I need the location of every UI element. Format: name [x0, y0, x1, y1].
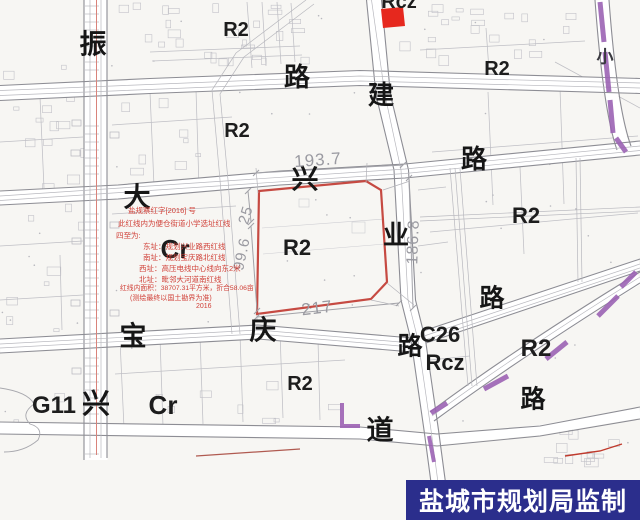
boundary-segment [196, 449, 300, 456]
zone-code-label: G11 [32, 394, 76, 418]
street-name-label: 路 [461, 146, 487, 172]
street-name-label: 建 [368, 82, 394, 108]
red-annotation-line: 北址：毗邻大河道南红线 [139, 276, 222, 284]
street-name-label: 兴 [82, 390, 110, 418]
red-annotation-line: 红线内面积：38707.31平方米，折合58.06亩 [120, 286, 254, 293]
street-name-label: 振 [80, 32, 107, 59]
zone-code-label: Rcz [381, 0, 417, 12]
agency-bar: 盐城市规划局监制 [406, 480, 640, 520]
red-line-parcel-boundary [257, 181, 387, 314]
zone-code-label: C26 [420, 324, 460, 346]
zone-code-label: Cr [149, 392, 178, 418]
zone-code-label: R2 [521, 337, 552, 361]
zone-code-label: Rcz [425, 352, 464, 374]
red-annotation-line: 此红线内为便仓街道小学选址红线 [118, 220, 231, 228]
street-name-label: 宝 [120, 324, 147, 351]
basemap-drawing [0, 0, 640, 520]
street-name-label: 路 [397, 335, 422, 360]
red-annotation-line: 2016 [196, 303, 212, 310]
red-annotation-line: (测绘最终以国土勘界为准) [130, 295, 212, 302]
street-name-label: 庆 [250, 318, 277, 345]
red-annotation-line: 南址：规划宝庆路北红线 [143, 254, 226, 262]
agency-bar-text: 盐城市规划局监制 [419, 482, 627, 518]
dimension-value-label: 217 [300, 298, 333, 319]
dimension-value-label: 193.7 [294, 150, 343, 170]
street-name-label: 路 [284, 64, 310, 90]
red-annotation-line: 东址：规划兴业路西红线 [143, 243, 226, 251]
red-annotation-line: 西址：高压电线中心线向东2米 [139, 265, 241, 273]
red-annotation-line: 盐规察红字[2016] 号 [128, 207, 196, 215]
zone-code-label: R2 [484, 59, 510, 79]
street-name-label: 路 [479, 287, 504, 312]
street-name-label: 路 [520, 388, 545, 413]
zone-code-label: R2 [223, 20, 249, 40]
street-name-label: 道 [367, 418, 394, 445]
planning-map: 振路建路大兴业宝庆路路路道兴小RczR2R2R2R2R2CrR2C26RczG1… [0, 0, 640, 520]
zone-code-label: R2 [287, 374, 313, 394]
zone-code-label: R2 [512, 205, 540, 227]
street-name-label: 小 [597, 49, 614, 66]
red-annotation-line: 四至为: [116, 232, 141, 240]
zone-code-label: R2 [283, 237, 311, 259]
dimension-value-label: 186.8 [405, 219, 423, 265]
zone-code-label: R2 [224, 121, 250, 141]
